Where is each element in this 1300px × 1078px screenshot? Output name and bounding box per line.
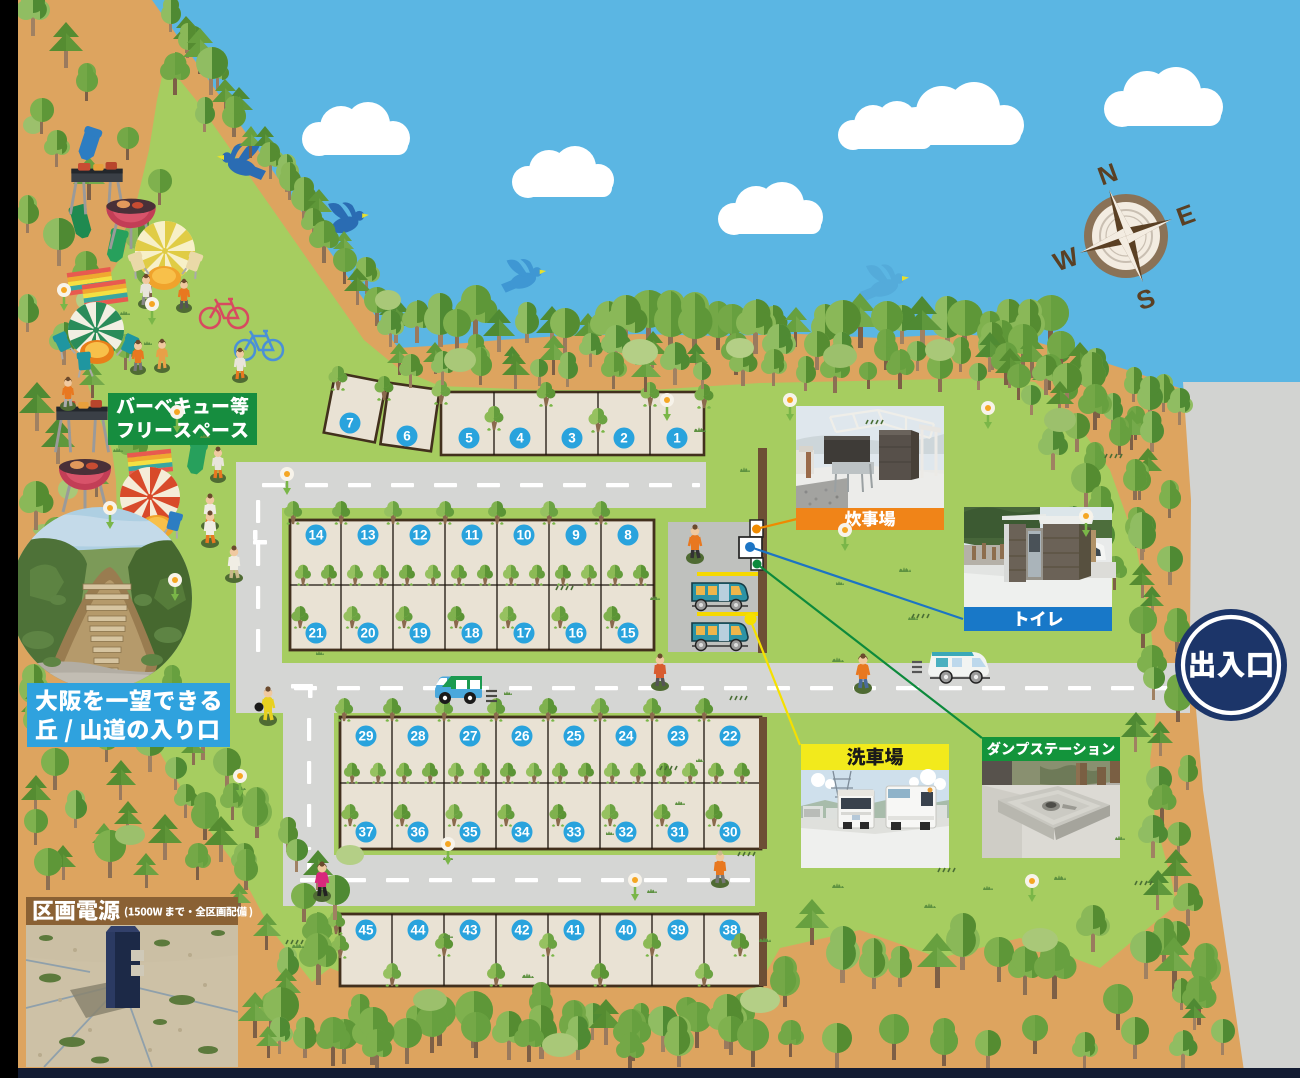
svg-text:33: 33 (566, 825, 582, 840)
svg-text:3: 3 (568, 431, 576, 446)
svg-text:6: 6 (403, 429, 411, 444)
svg-text:30: 30 (722, 825, 737, 840)
svg-text:37: 37 (358, 825, 373, 840)
svg-text:16: 16 (568, 626, 584, 641)
svg-text:9: 9 (572, 528, 580, 543)
svg-text:31: 31 (670, 825, 686, 840)
svg-text:29: 29 (358, 729, 373, 744)
svg-text:23: 23 (670, 729, 686, 744)
svg-text:26: 26 (514, 729, 530, 744)
svg-text:42: 42 (514, 923, 529, 938)
svg-text:39: 39 (670, 923, 685, 938)
svg-text:11: 11 (465, 528, 480, 543)
svg-text:43: 43 (462, 923, 478, 938)
svg-text:28: 28 (410, 729, 426, 744)
svg-text:24: 24 (618, 729, 634, 744)
svg-text:18: 18 (464, 626, 480, 641)
svg-text:45: 45 (358, 923, 374, 938)
svg-text:32: 32 (618, 825, 633, 840)
svg-text:2: 2 (620, 431, 628, 446)
svg-text:19: 19 (412, 626, 427, 641)
svg-text:41: 41 (566, 923, 582, 938)
svg-text:10: 10 (516, 528, 531, 543)
svg-text:15: 15 (620, 626, 636, 641)
svg-text:21: 21 (308, 626, 324, 641)
svg-text:25: 25 (566, 729, 582, 744)
svg-text:7: 7 (346, 416, 354, 431)
svg-text:36: 36 (410, 825, 426, 840)
svg-text:13: 13 (360, 528, 376, 543)
svg-text:1: 1 (673, 431, 681, 446)
svg-text:20: 20 (360, 626, 375, 641)
svg-text:12: 12 (412, 528, 427, 543)
svg-text:17: 17 (516, 626, 531, 641)
svg-text:4: 4 (516, 431, 524, 446)
svg-text:40: 40 (618, 923, 633, 938)
svg-text:5: 5 (465, 431, 473, 446)
svg-text:8: 8 (624, 528, 632, 543)
svg-text:44: 44 (410, 923, 426, 938)
svg-text:14: 14 (308, 528, 324, 543)
svg-text:34: 34 (514, 825, 530, 840)
svg-text:22: 22 (722, 729, 737, 744)
svg-text:27: 27 (462, 729, 477, 744)
svg-text:35: 35 (462, 825, 478, 840)
